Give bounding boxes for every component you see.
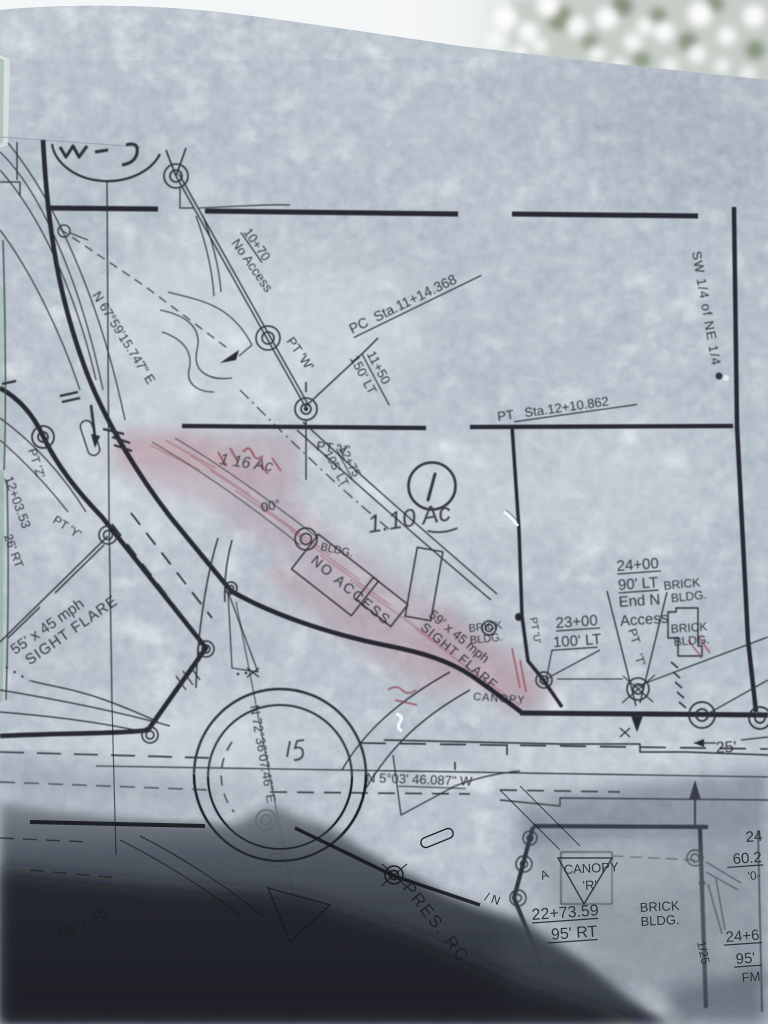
svg-text:CANOPY: CANOPY: [563, 859, 619, 877]
svg-text:BLDG.: BLDG.: [640, 912, 680, 929]
svg-text:24: 24: [745, 828, 763, 846]
svg-text:'R': 'R': [582, 877, 597, 893]
svg-text:'0-: '0-: [747, 868, 761, 883]
svg-text:BLDG.: BLDG.: [673, 632, 710, 648]
svg-text:25': 25': [715, 739, 737, 757]
svg-text:End N: End N: [618, 591, 661, 611]
svg-text:Access: Access: [619, 610, 668, 630]
svg-text:FM: FM: [741, 969, 761, 985]
